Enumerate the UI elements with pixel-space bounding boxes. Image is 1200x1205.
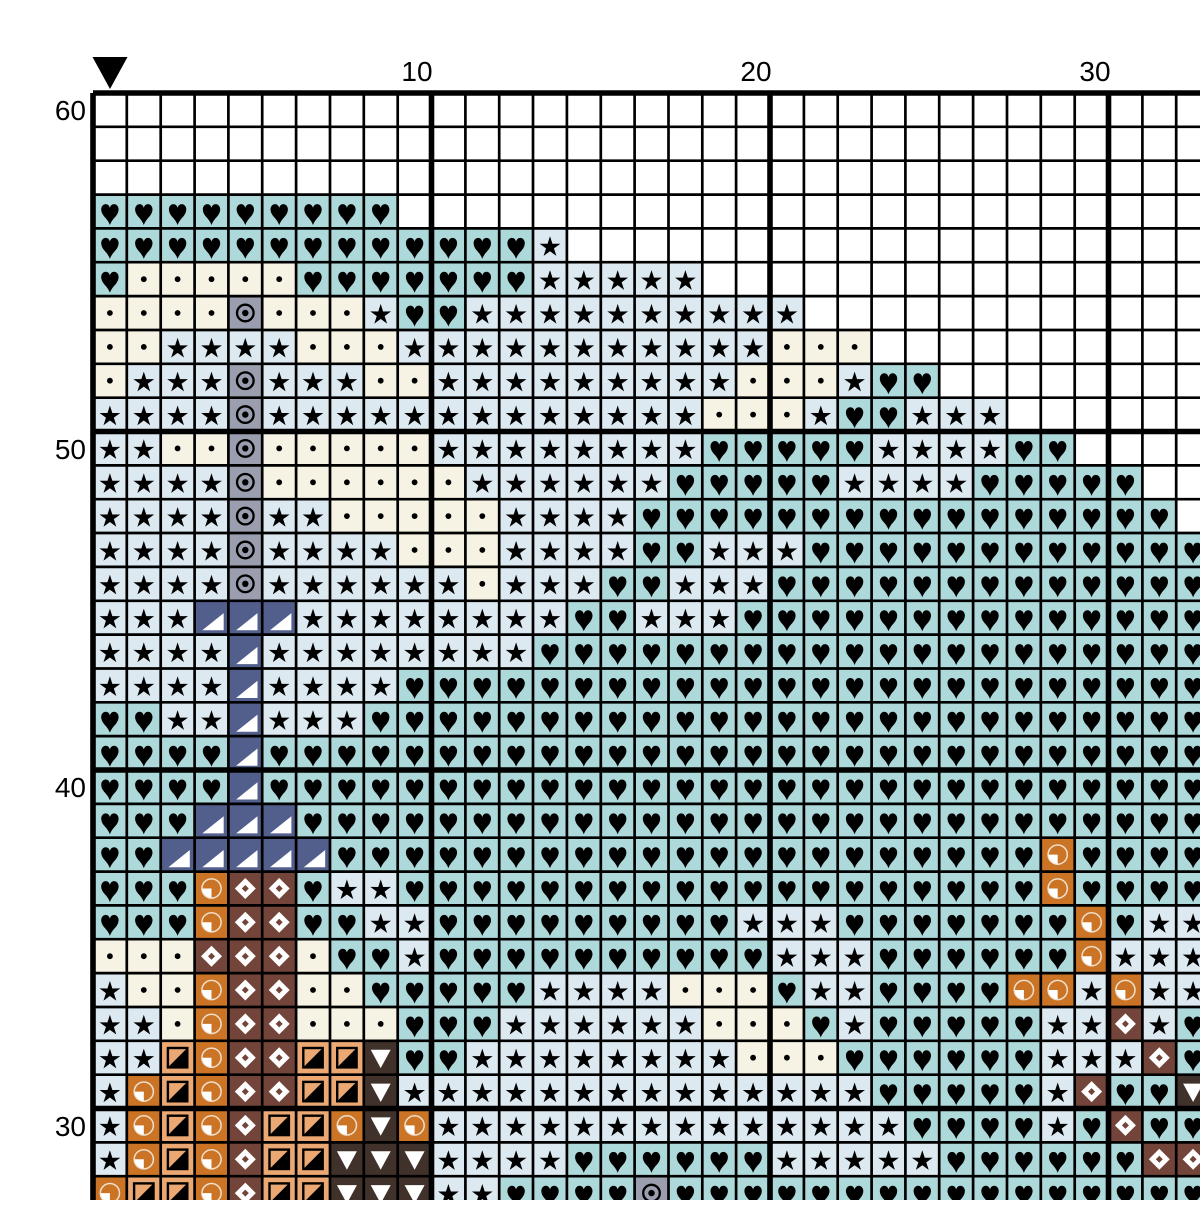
svg-text:30: 30: [55, 1111, 86, 1142]
svg-text:30: 30: [1079, 56, 1110, 87]
svg-text:20: 20: [740, 56, 771, 87]
svg-text:40: 40: [55, 772, 86, 803]
svg-text:60: 60: [55, 95, 86, 126]
svg-text:10: 10: [401, 56, 432, 87]
svg-text:50: 50: [55, 434, 86, 465]
